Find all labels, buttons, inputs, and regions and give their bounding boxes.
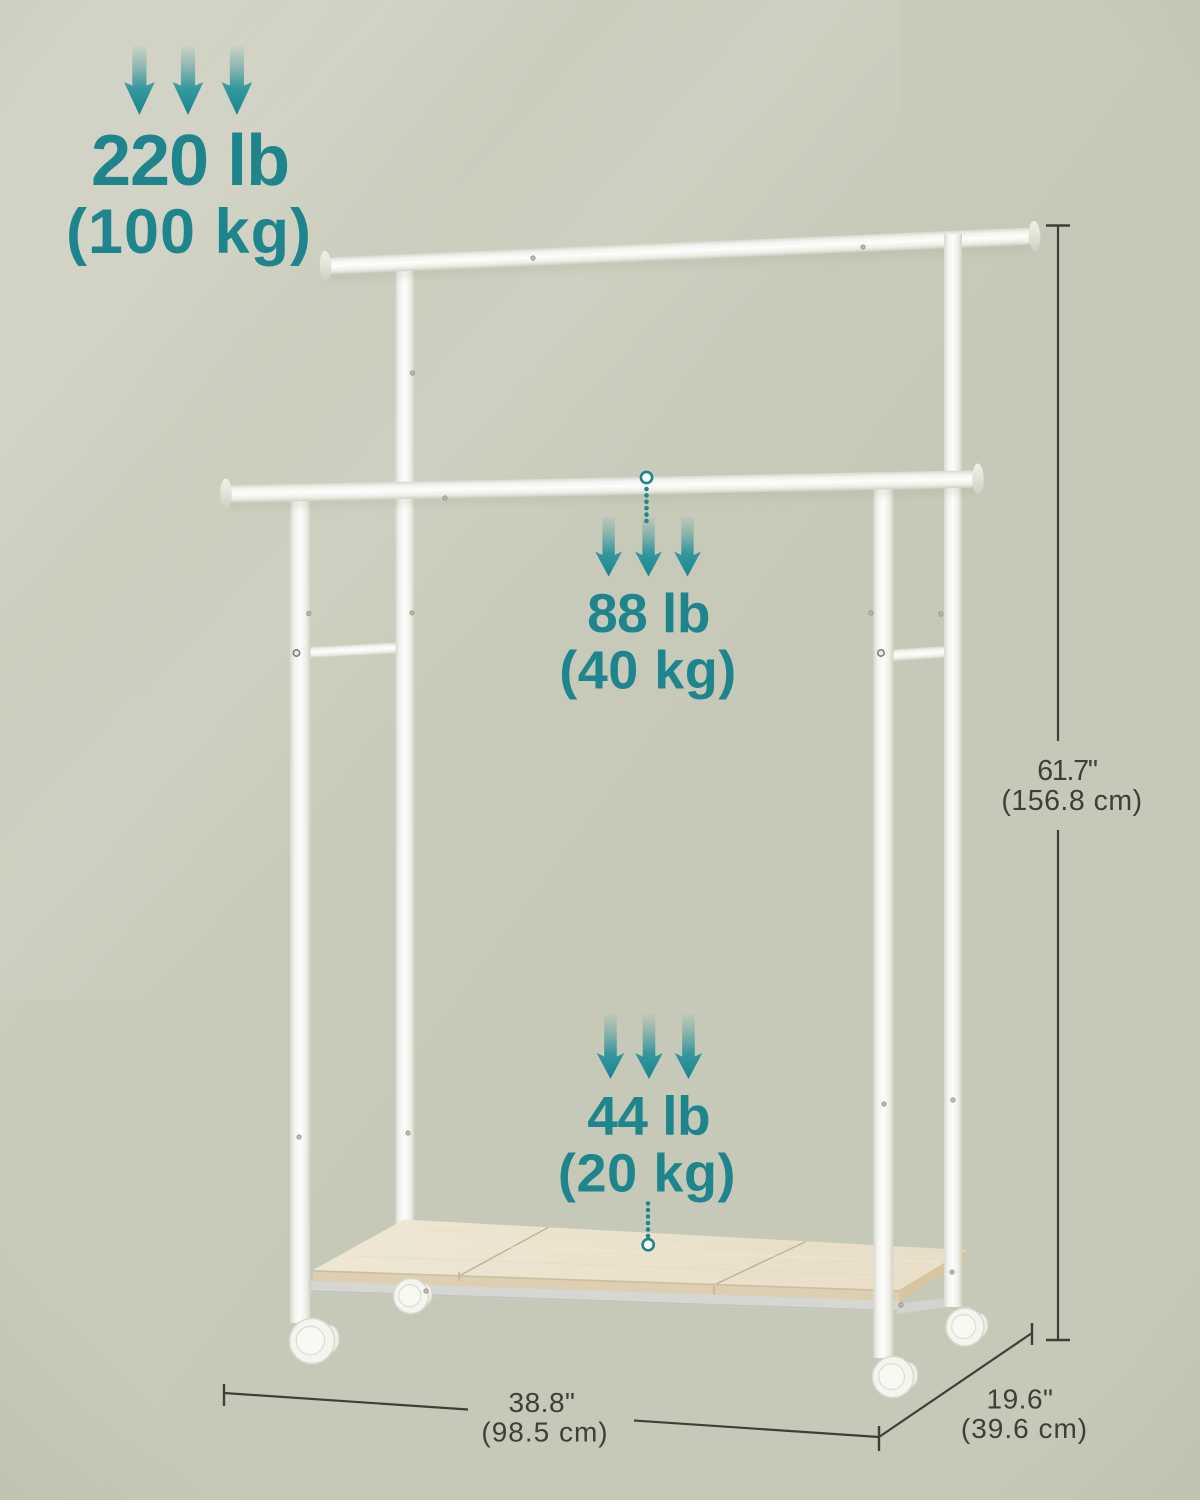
svg-text:(100 kg): (100 kg) xyxy=(66,197,312,267)
svg-text:38.8": 38.8" xyxy=(509,1387,576,1418)
svg-text:88 lb: 88 lb xyxy=(587,582,710,644)
svg-text:44 lb: 44 lb xyxy=(587,1085,710,1147)
svg-text:(39.6 cm): (39.6 cm) xyxy=(961,1413,1088,1444)
svg-text:(20 kg): (20 kg) xyxy=(558,1144,736,1204)
svg-text:61.7": 61.7" xyxy=(1037,755,1097,787)
svg-text:19.6": 19.6" xyxy=(987,1384,1054,1415)
svg-text:(156.8 cm): (156.8 cm) xyxy=(1001,785,1142,817)
svg-text:(40 kg): (40 kg) xyxy=(559,641,737,701)
svg-text:220 lb: 220 lb xyxy=(91,121,289,201)
svg-text:(98.5 cm): (98.5 cm) xyxy=(481,1417,608,1448)
